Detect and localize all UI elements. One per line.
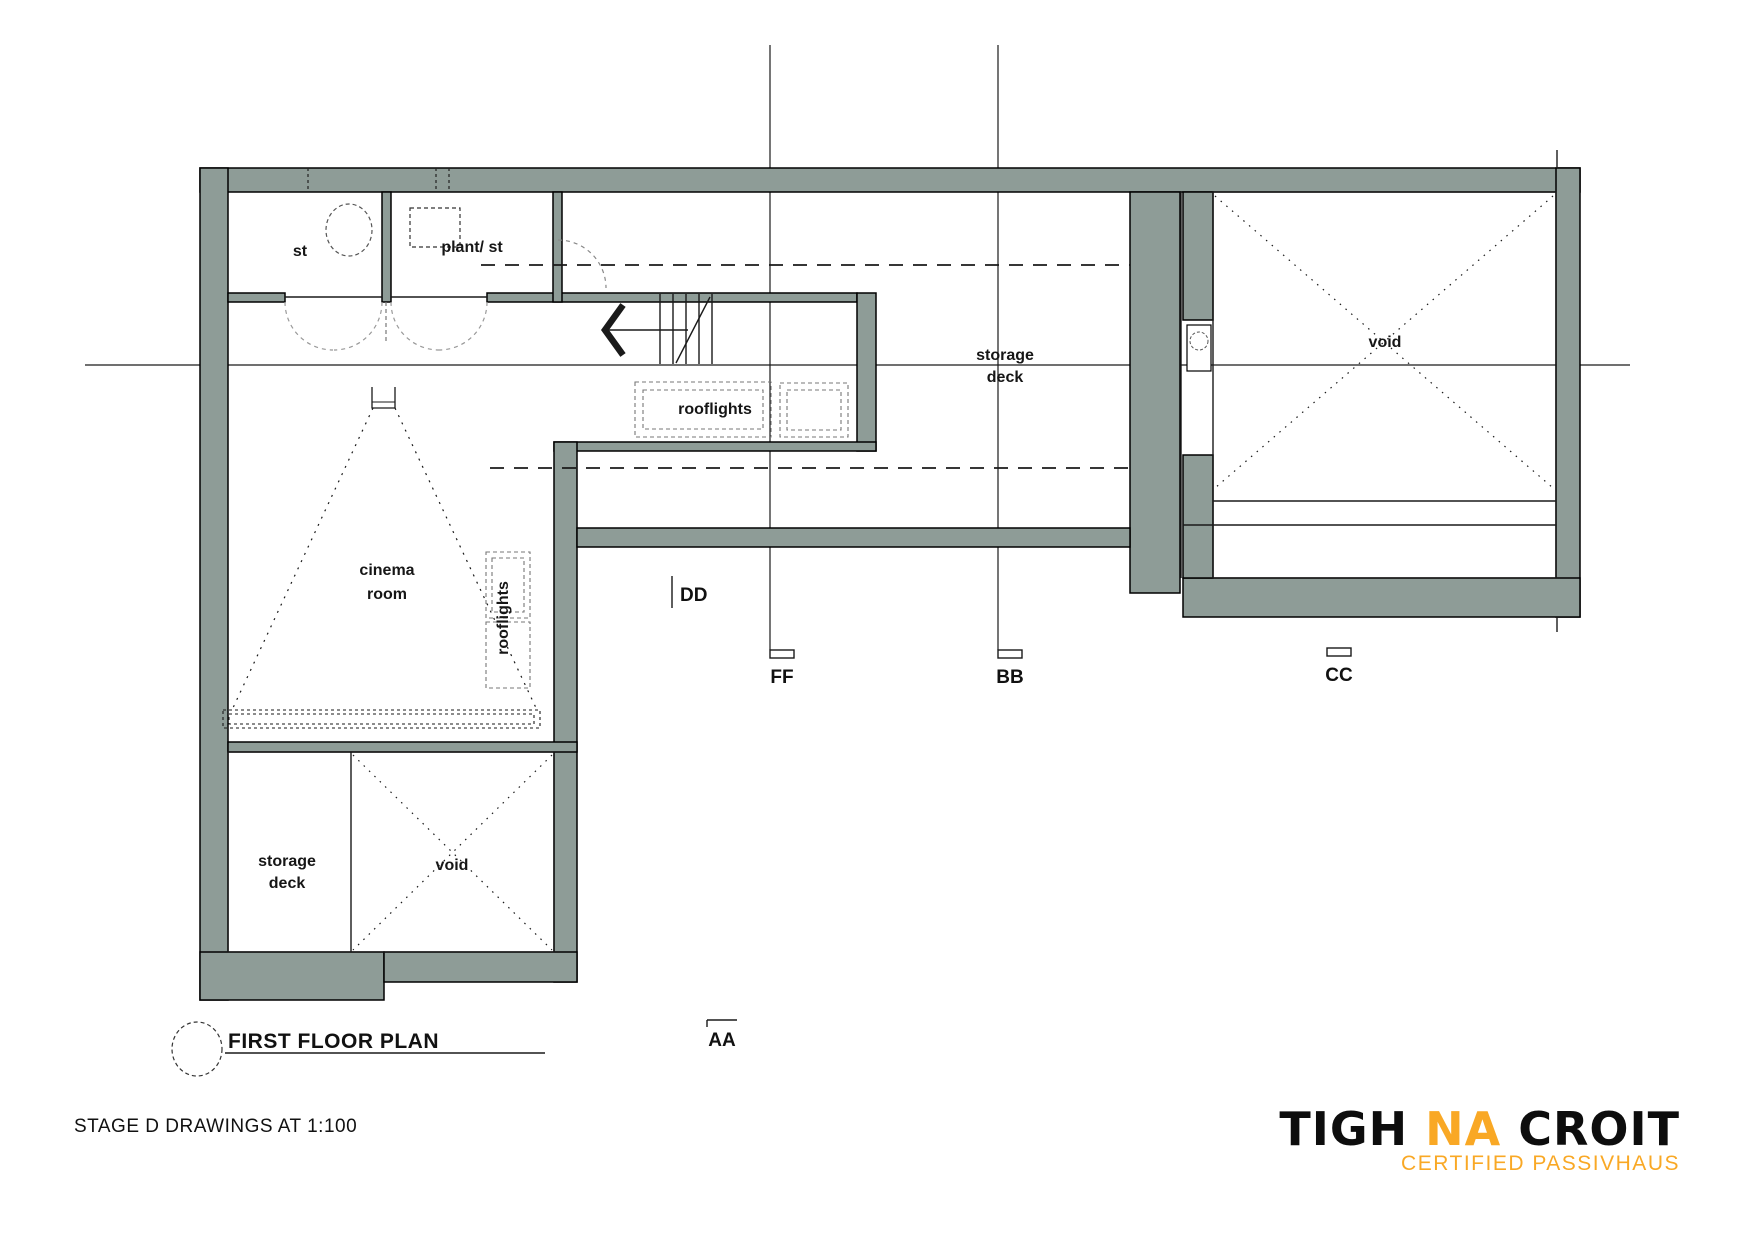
label-storage-lower-1: storage <box>258 853 316 870</box>
logo-wordmark: TIGH NA CROIT <box>1279 1106 1680 1152</box>
door-swing <box>391 302 439 350</box>
wall-divider-jamb-lower <box>1183 455 1213 578</box>
door-swing <box>334 302 382 350</box>
label-plant-st: plant/ st <box>441 239 503 256</box>
dashed-geometry <box>223 168 1553 950</box>
section-label-aa: AA <box>708 1030 736 1051</box>
wall-bottom-left-a <box>200 952 384 1000</box>
logo-word2: NA <box>1425 1102 1501 1156</box>
wall-bottom-left-b <box>384 952 577 982</box>
wall-divider-jamb-upper <box>1183 192 1213 320</box>
label-rooflights-vertical: rooflights <box>495 581 512 655</box>
page-title: FIRST FLOOR PLAN <box>228 1030 439 1054</box>
wall-st-plant-divider <box>382 192 391 302</box>
label-rooflights: rooflights <box>678 401 752 418</box>
wall-middle-bottom <box>577 528 1130 547</box>
room-labels: st plant/ st storage deck rooflights cin… <box>258 239 1401 892</box>
stair <box>605 294 712 364</box>
void-x-diagonal-lower <box>353 755 552 950</box>
drawing-sheet: st plant/ st storage deck rooflights cin… <box>0 0 1754 1241</box>
stage-note: STAGE D DRAWINGS AT 1:100 <box>74 1116 357 1138</box>
door-swing-plant <box>558 240 606 288</box>
rooflight-outline <box>780 383 848 437</box>
title-circle-icon <box>172 1022 222 1076</box>
projector-symbol <box>372 387 395 408</box>
section-marker-box-bb <box>998 650 1022 658</box>
wall-top <box>200 168 1580 192</box>
section-letters: DD FF BB CC AA <box>680 585 1353 1051</box>
void-room-outline <box>1213 192 1556 578</box>
wall-corridor-top <box>487 293 857 302</box>
wall-st-room-bottom <box>228 293 285 302</box>
wall-plant-right <box>553 192 562 302</box>
wall-divider-main <box>1130 192 1180 593</box>
interior-lines <box>228 150 1557 952</box>
wall-left <box>200 168 228 1000</box>
st-fixture-circle <box>326 204 372 256</box>
walls <box>200 168 1580 1000</box>
section-label-ff: FF <box>770 667 793 688</box>
rooflight-outline-inner <box>787 390 841 430</box>
void-x-diagonal-lower <box>353 755 552 950</box>
wall-stair-right <box>857 293 876 451</box>
label-st: st <box>293 243 308 260</box>
section-label-dd: DD <box>680 585 707 606</box>
section-markers <box>672 576 1351 1027</box>
section-marker-box-cc <box>1327 648 1351 656</box>
void-jamb-fixture <box>1187 325 1211 371</box>
label-storage-upper-1: storage <box>976 347 1034 364</box>
cinema-screen-outer <box>223 710 540 728</box>
label-storage-lower-2: deck <box>269 875 306 892</box>
lower-rooms-outline <box>228 752 554 952</box>
wall-cinema-bottom <box>228 742 577 752</box>
cinema-screen-inner <box>229 714 534 724</box>
wall-wing-right <box>554 442 577 982</box>
projection-cone-left <box>232 408 373 710</box>
section-label-bb: BB <box>996 667 1023 688</box>
label-cinema-2: room <box>367 586 407 603</box>
wall-bottom-right <box>1183 578 1580 617</box>
wall-stair-bottom <box>554 442 876 451</box>
label-void-upper: void <box>1369 334 1402 351</box>
logo-word1: TIGH <box>1279 1102 1408 1156</box>
floor-plan-drawing: st plant/ st storage deck rooflights cin… <box>0 0 1754 1241</box>
label-cinema-1: cinema <box>359 562 414 579</box>
projection-cone-right <box>395 408 537 710</box>
section-marker-box-ff <box>770 650 794 658</box>
wall-right <box>1556 168 1580 617</box>
logo-word3: CROIT <box>1518 1102 1680 1156</box>
door-swing <box>439 302 487 350</box>
door-swing <box>285 302 333 350</box>
section-label-cc: CC <box>1325 665 1353 686</box>
logo: TIGH NA CROIT CERTIFIED PASSIVHAUS <box>1279 1106 1680 1175</box>
label-void-lower: void <box>436 857 469 874</box>
label-storage-upper-2: deck <box>987 369 1024 386</box>
